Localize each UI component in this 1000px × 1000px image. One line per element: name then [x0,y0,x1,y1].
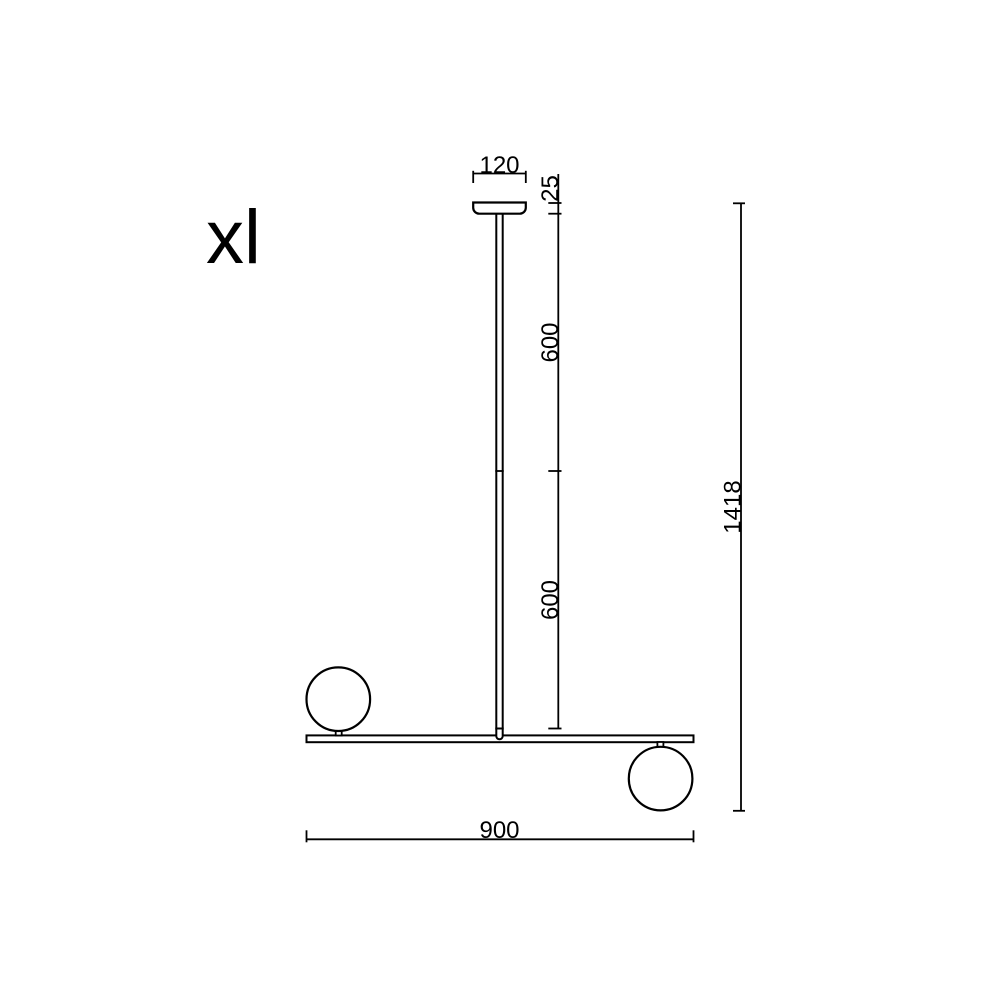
svg-text:xl: xl [206,195,261,280]
svg-text:900: 900 [479,817,519,844]
svg-text:600: 600 [537,322,564,362]
svg-text:1418: 1418 [720,480,747,533]
svg-text:120: 120 [479,152,519,179]
svg-text:25: 25 [537,175,564,202]
svg-text:600: 600 [537,580,564,620]
